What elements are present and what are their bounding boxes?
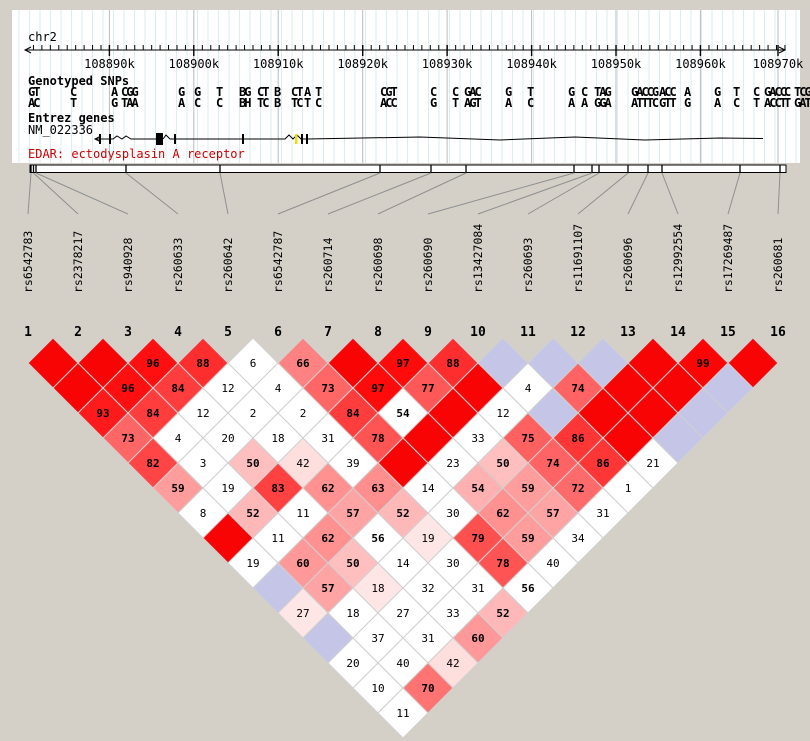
- chromosome-label: chr2: [28, 30, 57, 44]
- ld-cell-value: 75: [521, 432, 534, 445]
- heatmap-column-label: 8: [374, 325, 382, 340]
- snp-connector: [328, 173, 431, 214]
- ld-cell-value: 63: [371, 482, 384, 495]
- ld-cell-value: 59: [171, 482, 184, 495]
- transcript-id: NM_022336: [28, 123, 93, 137]
- snp-id-label: rs260698: [371, 238, 385, 293]
- gene-exon-tick: [109, 134, 111, 144]
- ld-cell-value: 14: [421, 482, 435, 495]
- allele-minor: AC: [28, 96, 40, 110]
- heatmap-column-label: 14: [670, 325, 686, 340]
- heatmap-column-label: 9: [424, 325, 432, 340]
- ld-cell-value: 50: [246, 457, 259, 470]
- ld-cell-value: 40: [396, 657, 409, 670]
- gene-exon-tick: [306, 134, 308, 144]
- ld-cell-value: 99: [696, 357, 709, 370]
- ruler-tick-label: 108970k: [753, 57, 804, 71]
- allele-minor: GTT: [659, 96, 676, 110]
- ld-cell-value: 62: [496, 507, 509, 520]
- ld-cell-value: 33: [471, 432, 484, 445]
- ld-cell-value: 52: [496, 607, 509, 620]
- gene-exon-tick: [242, 134, 244, 144]
- ld-cell-value: 77: [421, 382, 434, 395]
- heatmap-column-label: 15: [720, 325, 736, 340]
- ld-cell-value: 73: [121, 432, 134, 445]
- snp-connector: [28, 173, 31, 214]
- ld-cell-value: 70: [421, 682, 434, 695]
- heatmap-column-label: 4: [174, 325, 182, 340]
- ld-cell-value: 93: [96, 407, 109, 420]
- snp-id-label: rs940928: [121, 238, 135, 293]
- ruler-tick-label: 108950k: [591, 57, 642, 71]
- snp-id-label: rs260714: [321, 238, 335, 293]
- ld-cell-value: 52: [246, 507, 259, 520]
- ld-cell-value: 50: [496, 457, 509, 470]
- ld-cell-value: 23: [446, 457, 459, 470]
- snp-id-label: rs260690: [421, 238, 435, 293]
- snp-id-label: rs260693: [521, 238, 535, 293]
- allele-minor: ACC: [380, 96, 397, 110]
- allele-minor: TC: [257, 96, 269, 110]
- snp-id-label: rs11691107: [571, 224, 585, 293]
- ld-cell-value: 20: [221, 432, 234, 445]
- snp-connector: [34, 173, 79, 214]
- ld-plot-canvas: 108890k108900k108910k108920k108930k10894…: [0, 0, 810, 741]
- ld-cell-value: 39: [346, 457, 359, 470]
- ld-cell-value: 31: [421, 632, 434, 645]
- ld-cell-value: 12: [196, 407, 209, 420]
- snp-id-label: rs260642: [221, 238, 235, 293]
- gene-exon-tick: [174, 134, 176, 144]
- ld-cell-value: 10: [371, 682, 384, 695]
- snp-id-label: rs17269487: [721, 224, 735, 293]
- ld-cell-value: 57: [321, 582, 334, 595]
- gene-caption: EDAR: ectodysplasin A receptor: [28, 147, 245, 161]
- ld-cell-value: 86: [596, 457, 610, 470]
- ld-cell-value: 11: [271, 532, 284, 545]
- ld-cell-value: 62: [321, 532, 334, 545]
- ld-cell-value: 30: [446, 507, 459, 520]
- snp-id-label: rs260696: [621, 238, 635, 293]
- ld-cell-value: 78: [496, 557, 509, 570]
- ld-cell-value: 6: [250, 357, 257, 370]
- snp-connector-lines: [28, 173, 780, 214]
- ld-cell-value: 2: [250, 407, 257, 420]
- ld-cell-value: 18: [346, 607, 359, 620]
- snp-id-labels: rs6542783rs2378217rs940928rs260633rs2606…: [21, 224, 785, 293]
- ld-cell-value: 31: [596, 507, 609, 520]
- ld-cell-value: 97: [371, 382, 384, 395]
- ld-cell-value: 4: [525, 382, 532, 395]
- gene-exon-tick: [301, 134, 303, 144]
- snp-id-label: rs2378217: [71, 231, 85, 293]
- snp-connector: [36, 173, 128, 214]
- ld-cell-value: 96: [121, 382, 135, 395]
- ld-cell-value: 19: [246, 557, 259, 570]
- gene-utr-tick-yellow: [295, 134, 298, 144]
- ld-cell-value: 72: [571, 482, 584, 495]
- snp-connector: [378, 173, 466, 214]
- ld-cell-value: 42: [446, 657, 459, 670]
- ld-cell-value: 1: [625, 482, 632, 495]
- snp-connector: [278, 173, 380, 214]
- allele-minor: TAA: [121, 96, 139, 110]
- ld-cell-value: 82: [146, 457, 159, 470]
- snp-id-label: rs12992554: [671, 224, 685, 293]
- haploview-ld-window: 108890k108900k108910k108920k108930k10894…: [0, 0, 810, 741]
- ld-cell-value: 88: [446, 357, 459, 370]
- heatmap-column-label: 13: [620, 325, 636, 340]
- ld-cell-value: 74: [571, 382, 585, 395]
- ruler-tick-label: 108910k: [253, 57, 304, 71]
- snp-id-label: rs6542787: [271, 231, 285, 293]
- ruler-tick-label: 108920k: [337, 57, 388, 71]
- heatmap-column-label: 3: [124, 325, 132, 340]
- ruler-tick-label: 108890k: [84, 57, 135, 71]
- snp-id-label: rs260633: [171, 238, 185, 293]
- ld-cell-value: 19: [421, 532, 434, 545]
- heatmap-column-label: 2: [74, 325, 82, 340]
- snp-connector: [728, 173, 740, 214]
- ld-cell-value: 11: [296, 507, 309, 520]
- ld-cell-value: 74: [546, 457, 560, 470]
- ld-cell-value: 21: [646, 457, 659, 470]
- ld-cell-value: 73: [321, 382, 334, 395]
- ld-cell-value: 62: [321, 482, 334, 495]
- ld-cell-value: 40: [546, 557, 559, 570]
- ld-cell-value: 54: [396, 407, 410, 420]
- heatmap-column-label: 5: [224, 325, 232, 340]
- ld-cell-value: 33: [446, 607, 459, 620]
- ld-cell-value: 56: [371, 532, 385, 545]
- snp-connector: [428, 173, 574, 214]
- ld-heatmap: 1234567891011121314151696886669788999684…: [24, 325, 786, 738]
- ld-cell-value: 42: [296, 457, 309, 470]
- ld-cell-value: 12: [496, 407, 509, 420]
- ld-cell-value: 12: [221, 382, 234, 395]
- ld-cell-value: 56: [521, 582, 535, 595]
- ld-cell-value: 27: [296, 607, 309, 620]
- snp-connector: [578, 173, 628, 214]
- heatmap-column-label: 6: [274, 325, 282, 340]
- snp-connector: [478, 173, 592, 214]
- heatmap-column-label: 1: [24, 325, 32, 340]
- ld-cell-value: 84: [146, 407, 160, 420]
- ld-cell-value: 52: [396, 507, 409, 520]
- snp-position-band: [30, 165, 786, 173]
- ld-cell-value: 59: [521, 532, 534, 545]
- snp-connector: [778, 173, 780, 214]
- ld-cell-value: 84: [346, 407, 360, 420]
- ld-cell-value: 11: [396, 707, 409, 720]
- heatmap-column-label: 11: [520, 325, 536, 340]
- ld-cell-value: 57: [546, 507, 559, 520]
- ld-cell-value: 30: [446, 557, 459, 570]
- allele-minor: GGA: [594, 96, 612, 110]
- heatmap-column-label: 10: [470, 325, 486, 340]
- snp-connector: [662, 173, 678, 214]
- ld-cell-value: 59: [521, 482, 534, 495]
- ld-cell-value: 60: [296, 557, 309, 570]
- ld-cell-value: 18: [271, 432, 284, 445]
- ld-cell-value: 14: [396, 557, 410, 570]
- ld-cell-value: 79: [471, 532, 484, 545]
- heatmap-column-label: 16: [770, 325, 786, 340]
- band-bar: [30, 165, 786, 173]
- snp-id-label: rs260681: [771, 238, 785, 293]
- snp-id-label: rs6542783: [21, 231, 35, 293]
- snp-connector: [628, 173, 648, 214]
- ruler-tick-label: 108960k: [675, 57, 726, 71]
- allele-minor: ATTTC: [631, 96, 659, 110]
- ld-cell-value: 18: [371, 582, 384, 595]
- ld-cell-value: 50: [346, 557, 359, 570]
- snp-connector: [126, 173, 178, 214]
- ld-cell-value: 8: [200, 507, 207, 520]
- ld-cell-value: 32: [421, 582, 434, 595]
- ld-cell-value: 4: [175, 432, 182, 445]
- ld-cell-value: 37: [371, 632, 384, 645]
- ruler-tick-label: 108930k: [422, 57, 473, 71]
- snp-connector: [220, 173, 228, 214]
- ruler-tick-label: 108900k: [169, 57, 220, 71]
- ld-cell-value: 88: [196, 357, 209, 370]
- snp-connector: [528, 173, 599, 214]
- ruler-tick-label: 108940k: [506, 57, 557, 71]
- ld-cell-value: 60: [471, 632, 484, 645]
- ld-cell-value: 57: [346, 507, 359, 520]
- ld-cell-value: 31: [471, 582, 484, 595]
- ld-cell-value: 78: [371, 432, 384, 445]
- ld-cell-value: 19: [221, 482, 234, 495]
- allele-minor: BH: [239, 96, 251, 110]
- ld-cell-value: 54: [471, 482, 485, 495]
- allele-minor: GAT: [794, 96, 810, 110]
- ld-cell-value: 97: [396, 357, 409, 370]
- allele-minor: AGT: [464, 96, 481, 110]
- ld-cell-value: 34: [571, 532, 585, 545]
- ld-cell-value: 2: [300, 407, 307, 420]
- snp-id-label: rs13427084: [471, 224, 485, 293]
- ld-cell-value: 3: [200, 457, 207, 470]
- ld-cell-value: 96: [146, 357, 160, 370]
- ld-cell-value: 27: [396, 607, 409, 620]
- heatmap-column-label: 12: [570, 325, 586, 340]
- ld-cell-value: 20: [346, 657, 359, 670]
- allele-minor: TC: [291, 96, 303, 110]
- ld-cell-value: 86: [571, 432, 585, 445]
- ld-cell-value: 83: [271, 482, 284, 495]
- heatmap-column-label: 7: [324, 325, 332, 340]
- gene-exon-box: [156, 133, 163, 145]
- gene-exon-tick: [99, 134, 101, 144]
- ld-cell-value: 4: [275, 382, 282, 395]
- ld-cell-value: 84: [171, 382, 185, 395]
- ld-cell-value: 31: [321, 432, 334, 445]
- ld-cell-value: 66: [296, 357, 310, 370]
